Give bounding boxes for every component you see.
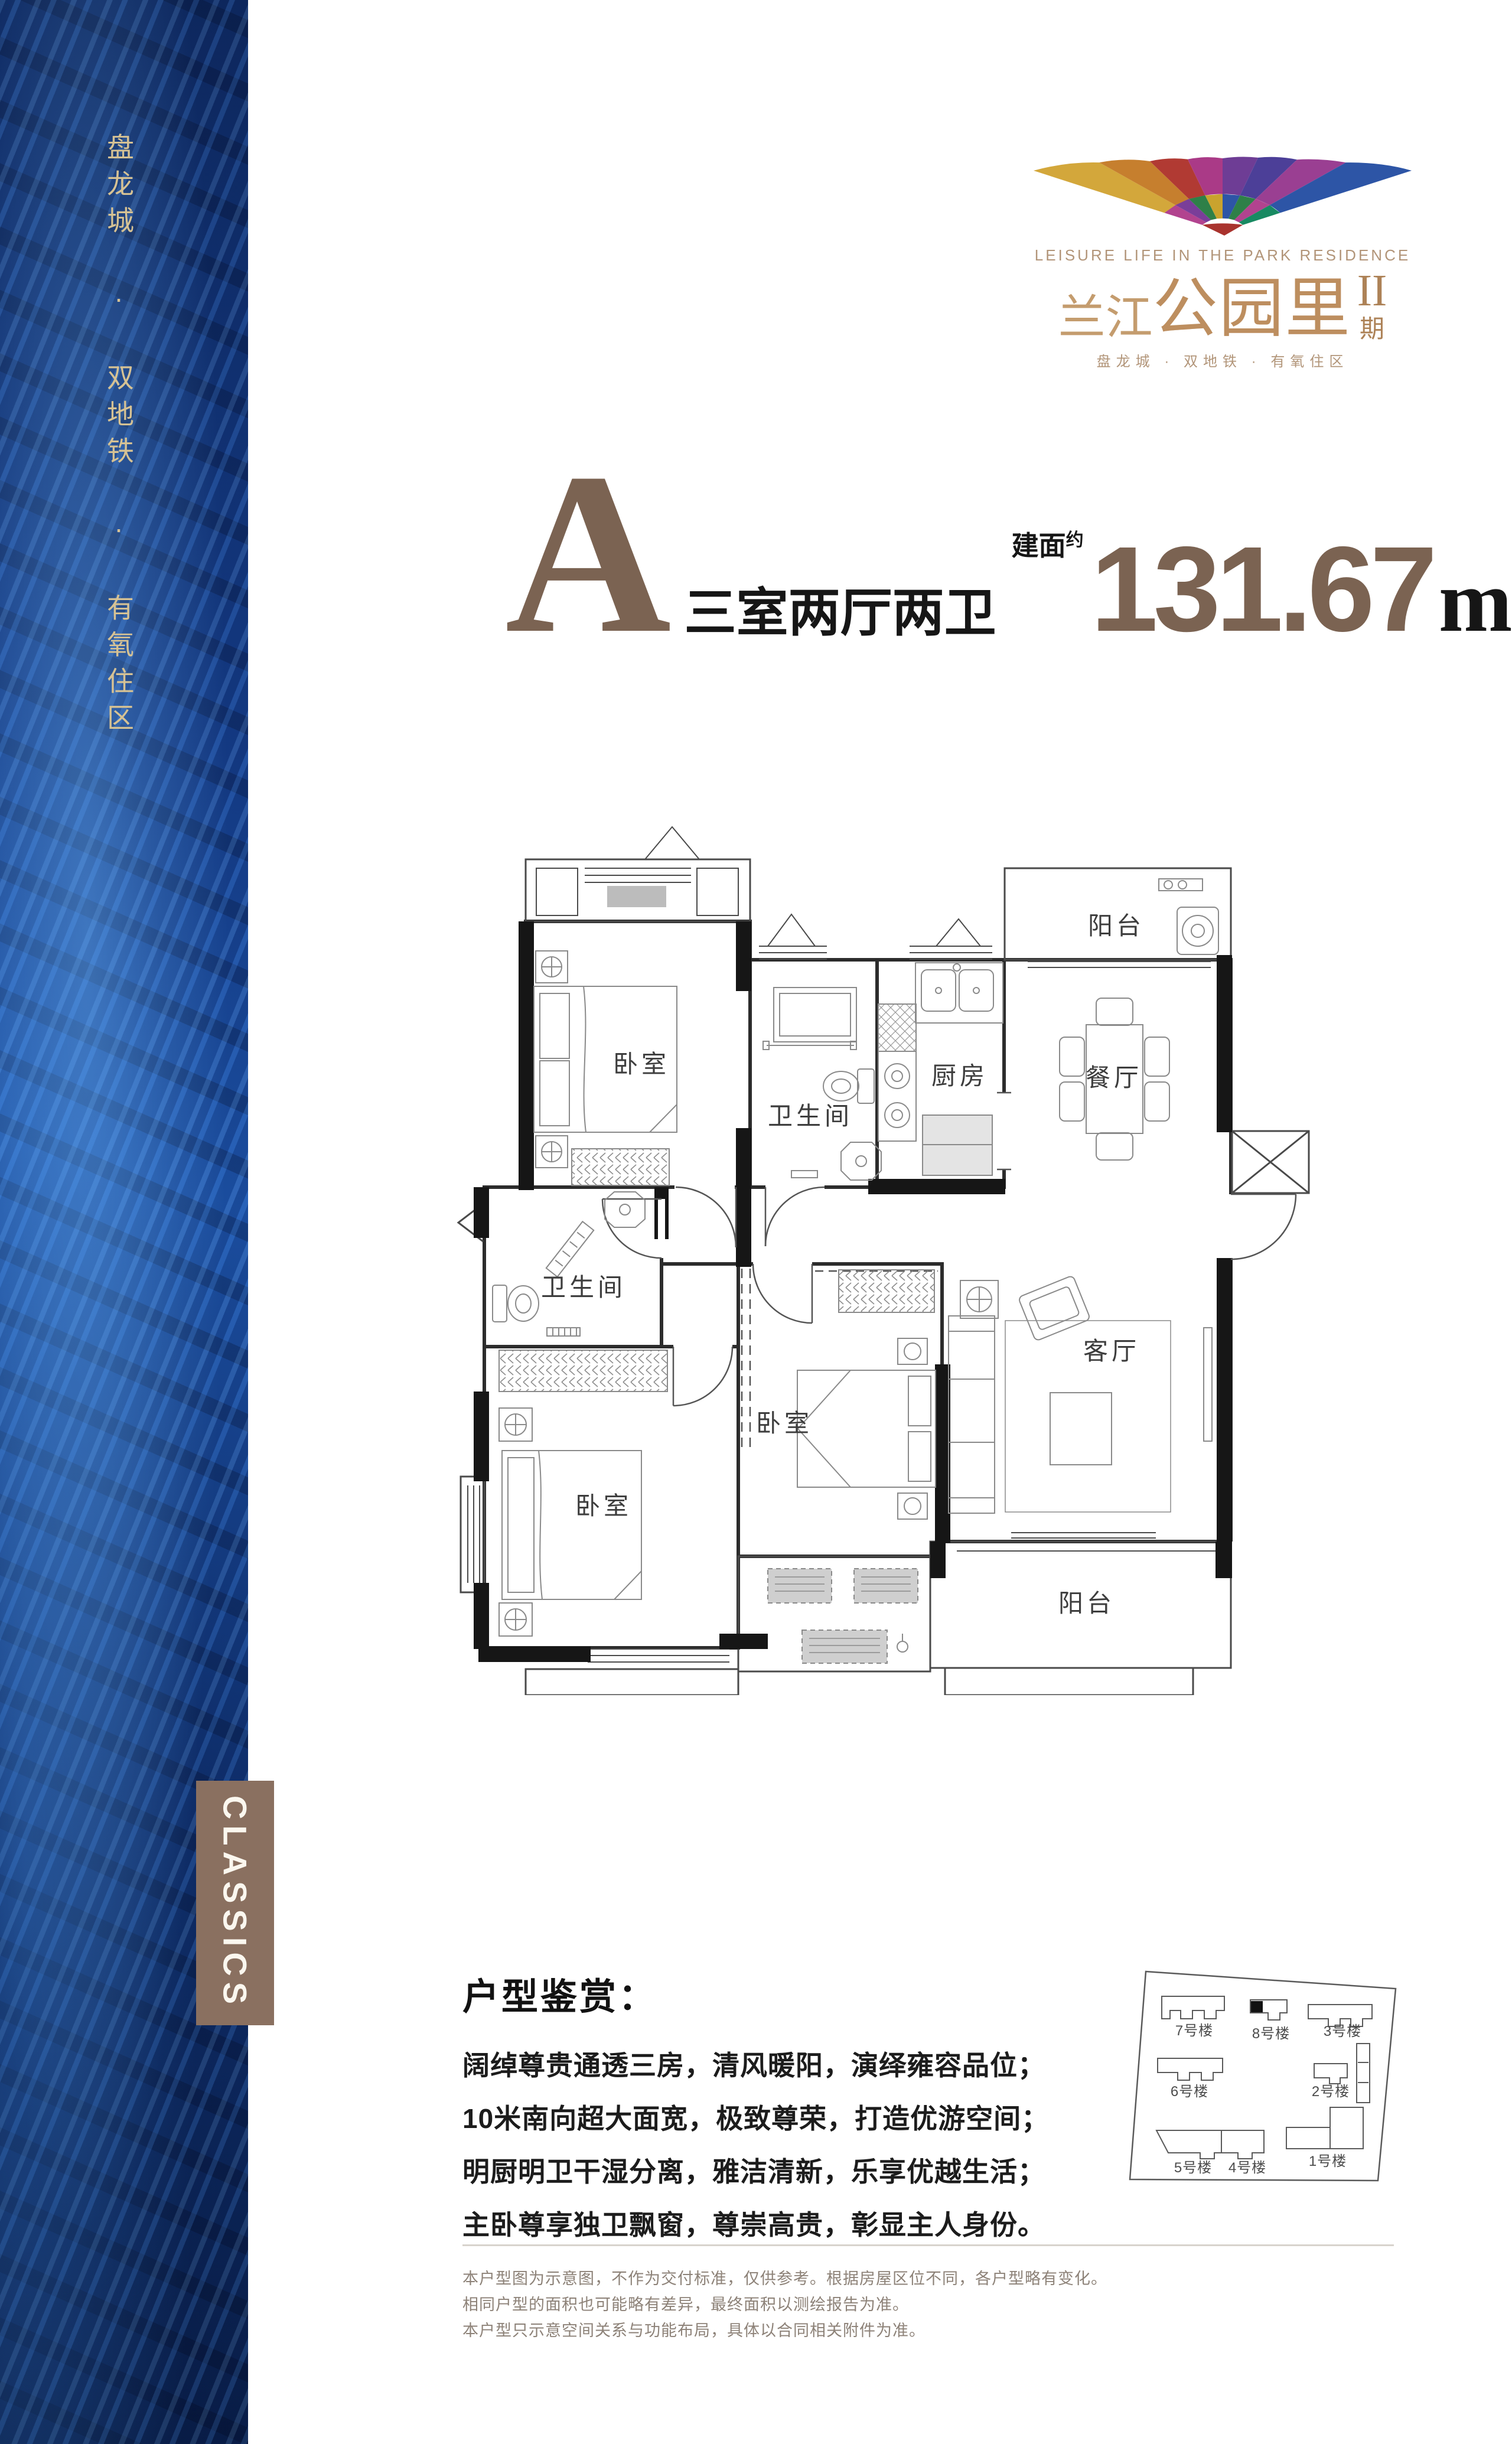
building-label-3: 3号楼 <box>1324 2023 1361 2039</box>
room-label-kitchen: 厨房 <box>931 1062 988 1090</box>
building-label-6: 6号楼 <box>1171 2084 1208 2100</box>
building-label-4: 4号楼 <box>1228 2160 1266 2176</box>
room-label-bath-top: 卫生间 <box>768 1102 853 1130</box>
room-label-living: 客厅 <box>1083 1337 1140 1365</box>
room-label-bath-mid: 卫生间 <box>541 1273 626 1301</box>
brand-main: 公园里 <box>1153 276 1351 341</box>
logo-brand-line: 兰江 公园里 II 期 <box>1031 268 1415 341</box>
appreciation-line: 10米南向超大面宽，极致尊荣，打造优游空间； <box>462 2092 1130 2145</box>
windows-layer <box>468 827 1223 1662</box>
building-label-1: 1号楼 <box>1309 2153 1347 2169</box>
disclaimer-line: 本户型只示意空间关系与功能布局，具体以合同相关附件为准。 <box>462 2318 1171 2344</box>
phase-roman: II <box>1357 268 1387 313</box>
furniture-layer <box>493 879 1218 1663</box>
area-unit: m <box>1439 552 1512 650</box>
building-label-7: 7号楼 <box>1175 2023 1213 2039</box>
brand-logo: LEISURE LIFE IN THE PARK RESIDENCE 兰江 公园… <box>1031 139 1415 370</box>
footer-divider <box>462 2244 1394 2246</box>
appreciation-line: 主卧尊享独卫飘窗，尊崇高贵，彰显主人身份。 <box>462 2198 1130 2251</box>
site-plan: 7号楼 8号楼 3号楼 6号楼 2号楼 5号楼 4号楼 1号楼 <box>1122 1961 1429 2238</box>
logo-english-line: LEISURE LIFE IN THE PARK RESIDENCE <box>1031 246 1415 265</box>
plan-title: A三室两厅两卫建面约131.67m2 <box>505 438 1512 669</box>
building-label-2: 2号楼 <box>1312 2084 1350 2100</box>
area-value: 131.67 <box>1091 522 1433 657</box>
building-label-5: 5号楼 <box>1174 2160 1212 2176</box>
phase-cn: 期 <box>1360 317 1384 341</box>
brand-prefix: 兰江 <box>1058 294 1153 341</box>
highlighted-building-marker <box>1251 2001 1263 2012</box>
disclaimer-block: 本户型图为示意图，不作为交付标准，仅供参考。根据房屋区位不同，各户型略有变化。 … <box>462 2266 1171 2344</box>
sidebar-slogan: 盘龙城 · 双地铁 · 有氧住区 <box>99 133 138 740</box>
brand-phase: II 期 <box>1357 268 1387 341</box>
site-buildings <box>1156 1996 1372 2159</box>
appreciation-block: 户型鉴赏： 阔绰尊贵通透三房，清风暖阳，演绎雍容品位； 10米南向超大面宽，极致… <box>462 1967 1130 2251</box>
classics-label: CLASSICS <box>216 1795 255 2010</box>
room-label-dining: 餐厅 <box>1086 1064 1142 1091</box>
room-label-bedroom-bl: 卧室 <box>575 1492 632 1520</box>
classics-badge: CLASSICS <box>196 1781 274 2025</box>
room-label-bedroom-mid: 卧室 <box>756 1409 813 1437</box>
disclaimer-line: 相同户型的面积也可能略有差异，最终面积以测绘报告为准。 <box>462 2292 1171 2318</box>
plan-letter: A <box>505 426 672 681</box>
disclaimer-line: 本户型图为示意图，不作为交付标准，仅供参考。根据房屋区位不同，各户型略有变化。 <box>462 2266 1171 2292</box>
room-label-balcony-bottom: 阳台 <box>1058 1589 1115 1617</box>
plan-layout-text: 三室两厅两卫 <box>685 584 996 642</box>
appreciation-heading: 户型鉴赏： <box>462 1967 1130 2020</box>
floor-plan: 阳台 卧室 卫生间 厨房 餐厅 卫生间 卧室 卧室 客厅 阳台 <box>437 809 1394 1695</box>
building-label-8: 8号楼 <box>1252 2026 1290 2042</box>
butterfly-logo-icon <box>1031 139 1415 236</box>
logo-tagline: 盘龙城 · 双地铁 · 有氧住区 <box>1031 350 1415 370</box>
room-label-bedroom-tl: 卧室 <box>613 1050 670 1078</box>
appreciation-line: 阔绰尊贵通透三房，清风暖阳，演绎雍容品位； <box>462 2039 1130 2092</box>
room-label-balcony-top: 阳台 <box>1088 912 1145 940</box>
appreciation-line: 明厨明卫干湿分离，雅洁清新，乐享优越生活； <box>462 2145 1130 2198</box>
area-label: 建面约 <box>1012 548 1084 558</box>
bay-sill <box>607 886 666 907</box>
